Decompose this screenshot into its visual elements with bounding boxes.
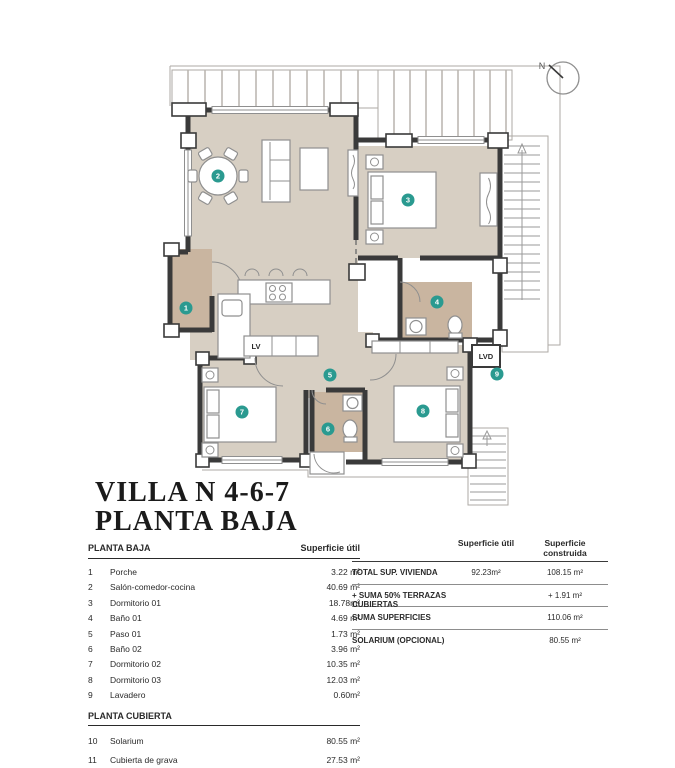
room-marker-bano01: 4	[431, 296, 444, 309]
sofa	[262, 140, 290, 202]
totals-table: Superficie útil Superficie construida TO…	[352, 538, 608, 651]
table-row: 3Dormitorio 0118.78m²	[88, 598, 360, 613]
toilet	[448, 316, 462, 334]
pillow	[446, 389, 458, 412]
room-marker-dormitorio02: 7	[236, 406, 249, 419]
table-row: TOTAL SUP. VIVIENDA 92.23m² 108.15 m²	[352, 562, 608, 585]
floor-plan-drawing: LVD LV N 1 2 3 4 5 6 7 8 9	[0, 0, 675, 520]
left-table-header: PLANTA BAJA Superficie útil	[88, 543, 360, 559]
pillow	[446, 414, 458, 437]
surface-table-planta-baja: PLANTA BAJA Superficie útil 1Porche3.22 …	[88, 543, 360, 768]
table-row: 7Dormitorio 0210.35 m²	[88, 659, 360, 674]
svg-text:2: 2	[216, 172, 220, 181]
laundry-label: LVD	[479, 352, 494, 361]
room-marker-lavadero: 9	[491, 368, 504, 381]
svg-text:8: 8	[421, 407, 425, 416]
svg-text:5: 5	[328, 371, 332, 380]
table-row: 11Cubierta de grava27.53 m²	[88, 755, 360, 768]
totals-col-util: Superficie útil	[450, 538, 522, 548]
table-row: SOLARIUM (OPCIONAL) 80.55 m²	[352, 630, 608, 652]
room-marker-porche: 1	[180, 302, 193, 315]
totals-header: Superficie útil Superficie construida	[352, 538, 608, 562]
svg-text:7: 7	[240, 408, 244, 417]
title-line2: PLANTA BAJA	[95, 508, 298, 537]
floor-plan-sheet: LVD LV N 1 2 3 4 5 6 7 8 9 VILLA N 4-6-7…	[0, 0, 675, 768]
table-row: 6Baño 023.96 m²	[88, 644, 360, 659]
table-row: 4Baño 014.69 m²	[88, 613, 360, 628]
dishwasher-label: LV	[251, 342, 260, 351]
svg-text:6: 6	[326, 425, 330, 434]
table-row: 5Paso 011.73 m²	[88, 629, 360, 644]
pillow	[207, 390, 219, 413]
room-marker-dormitorio03: 8	[417, 405, 430, 418]
porch-floor	[170, 249, 212, 330]
table-row: 9Lavadero0.60m²	[88, 690, 360, 705]
toilet	[343, 420, 357, 438]
left-table-subheader: PLANTA CUBIERTA	[88, 711, 360, 726]
totals-col-constr: Superficie construida	[522, 538, 608, 558]
table-row: + SUMA 50% TERRAZAS CUBIERTAS + 1.91 m²	[352, 585, 608, 608]
svg-text:1: 1	[184, 304, 188, 313]
coffee-table	[300, 148, 328, 190]
cooktop	[266, 283, 292, 302]
svg-text:3: 3	[406, 196, 410, 205]
wardrobe	[480, 173, 497, 226]
pillow	[207, 415, 219, 438]
left-table-title: PLANTA BAJA	[88, 543, 151, 553]
room-marker-paso: 5	[324, 369, 337, 382]
svg-text:9: 9	[495, 370, 499, 379]
shower	[310, 452, 344, 474]
room-marker-dormitorio01: 3	[402, 194, 415, 207]
tv-unit	[348, 150, 358, 196]
pillow	[371, 201, 383, 224]
laundry-box: LVD	[472, 345, 500, 367]
title-line1: VILLA N 4-6-7	[95, 479, 298, 508]
table-row: 8Dormitorio 0312.03 m²	[88, 675, 360, 690]
room-marker-salon: 2	[212, 170, 225, 183]
table-row: 10Solarium80.55 m²	[88, 736, 360, 755]
room-marker-bano02: 6	[322, 423, 335, 436]
pillow	[371, 176, 383, 199]
wardrobe	[372, 341, 458, 353]
table-row: SUMA SUPERFICIES 110.06 m²	[352, 607, 608, 630]
table-row: 2Salón-comedor-cocina40.69 m²	[88, 582, 360, 597]
kitchen-sink	[222, 300, 242, 316]
table-row: 1Porche3.22 m²	[88, 567, 360, 582]
north-label: N	[539, 61, 546, 71]
external-staircase-right	[502, 136, 548, 352]
sheet-title: VILLA N 4-6-7 PLANTA BAJA	[95, 479, 298, 536]
